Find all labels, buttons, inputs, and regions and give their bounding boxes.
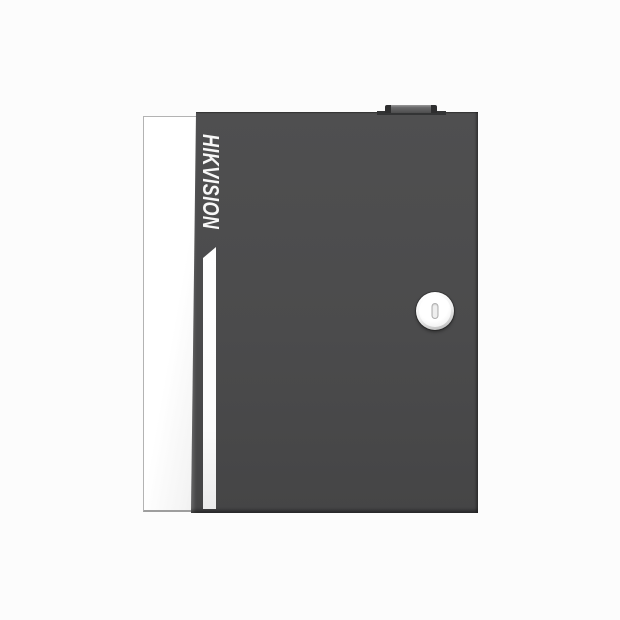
product-photo: HIKVISION [0,0,620,620]
brand-logo: HIKVISION [202,134,220,237]
keyhole-slot-icon [432,303,439,319]
top-hinge-tab [385,105,437,113]
lock-face [419,295,451,327]
enclosure-side-panel [143,116,196,512]
keyhole-lock [416,292,454,330]
accent-stripe [203,247,216,509]
